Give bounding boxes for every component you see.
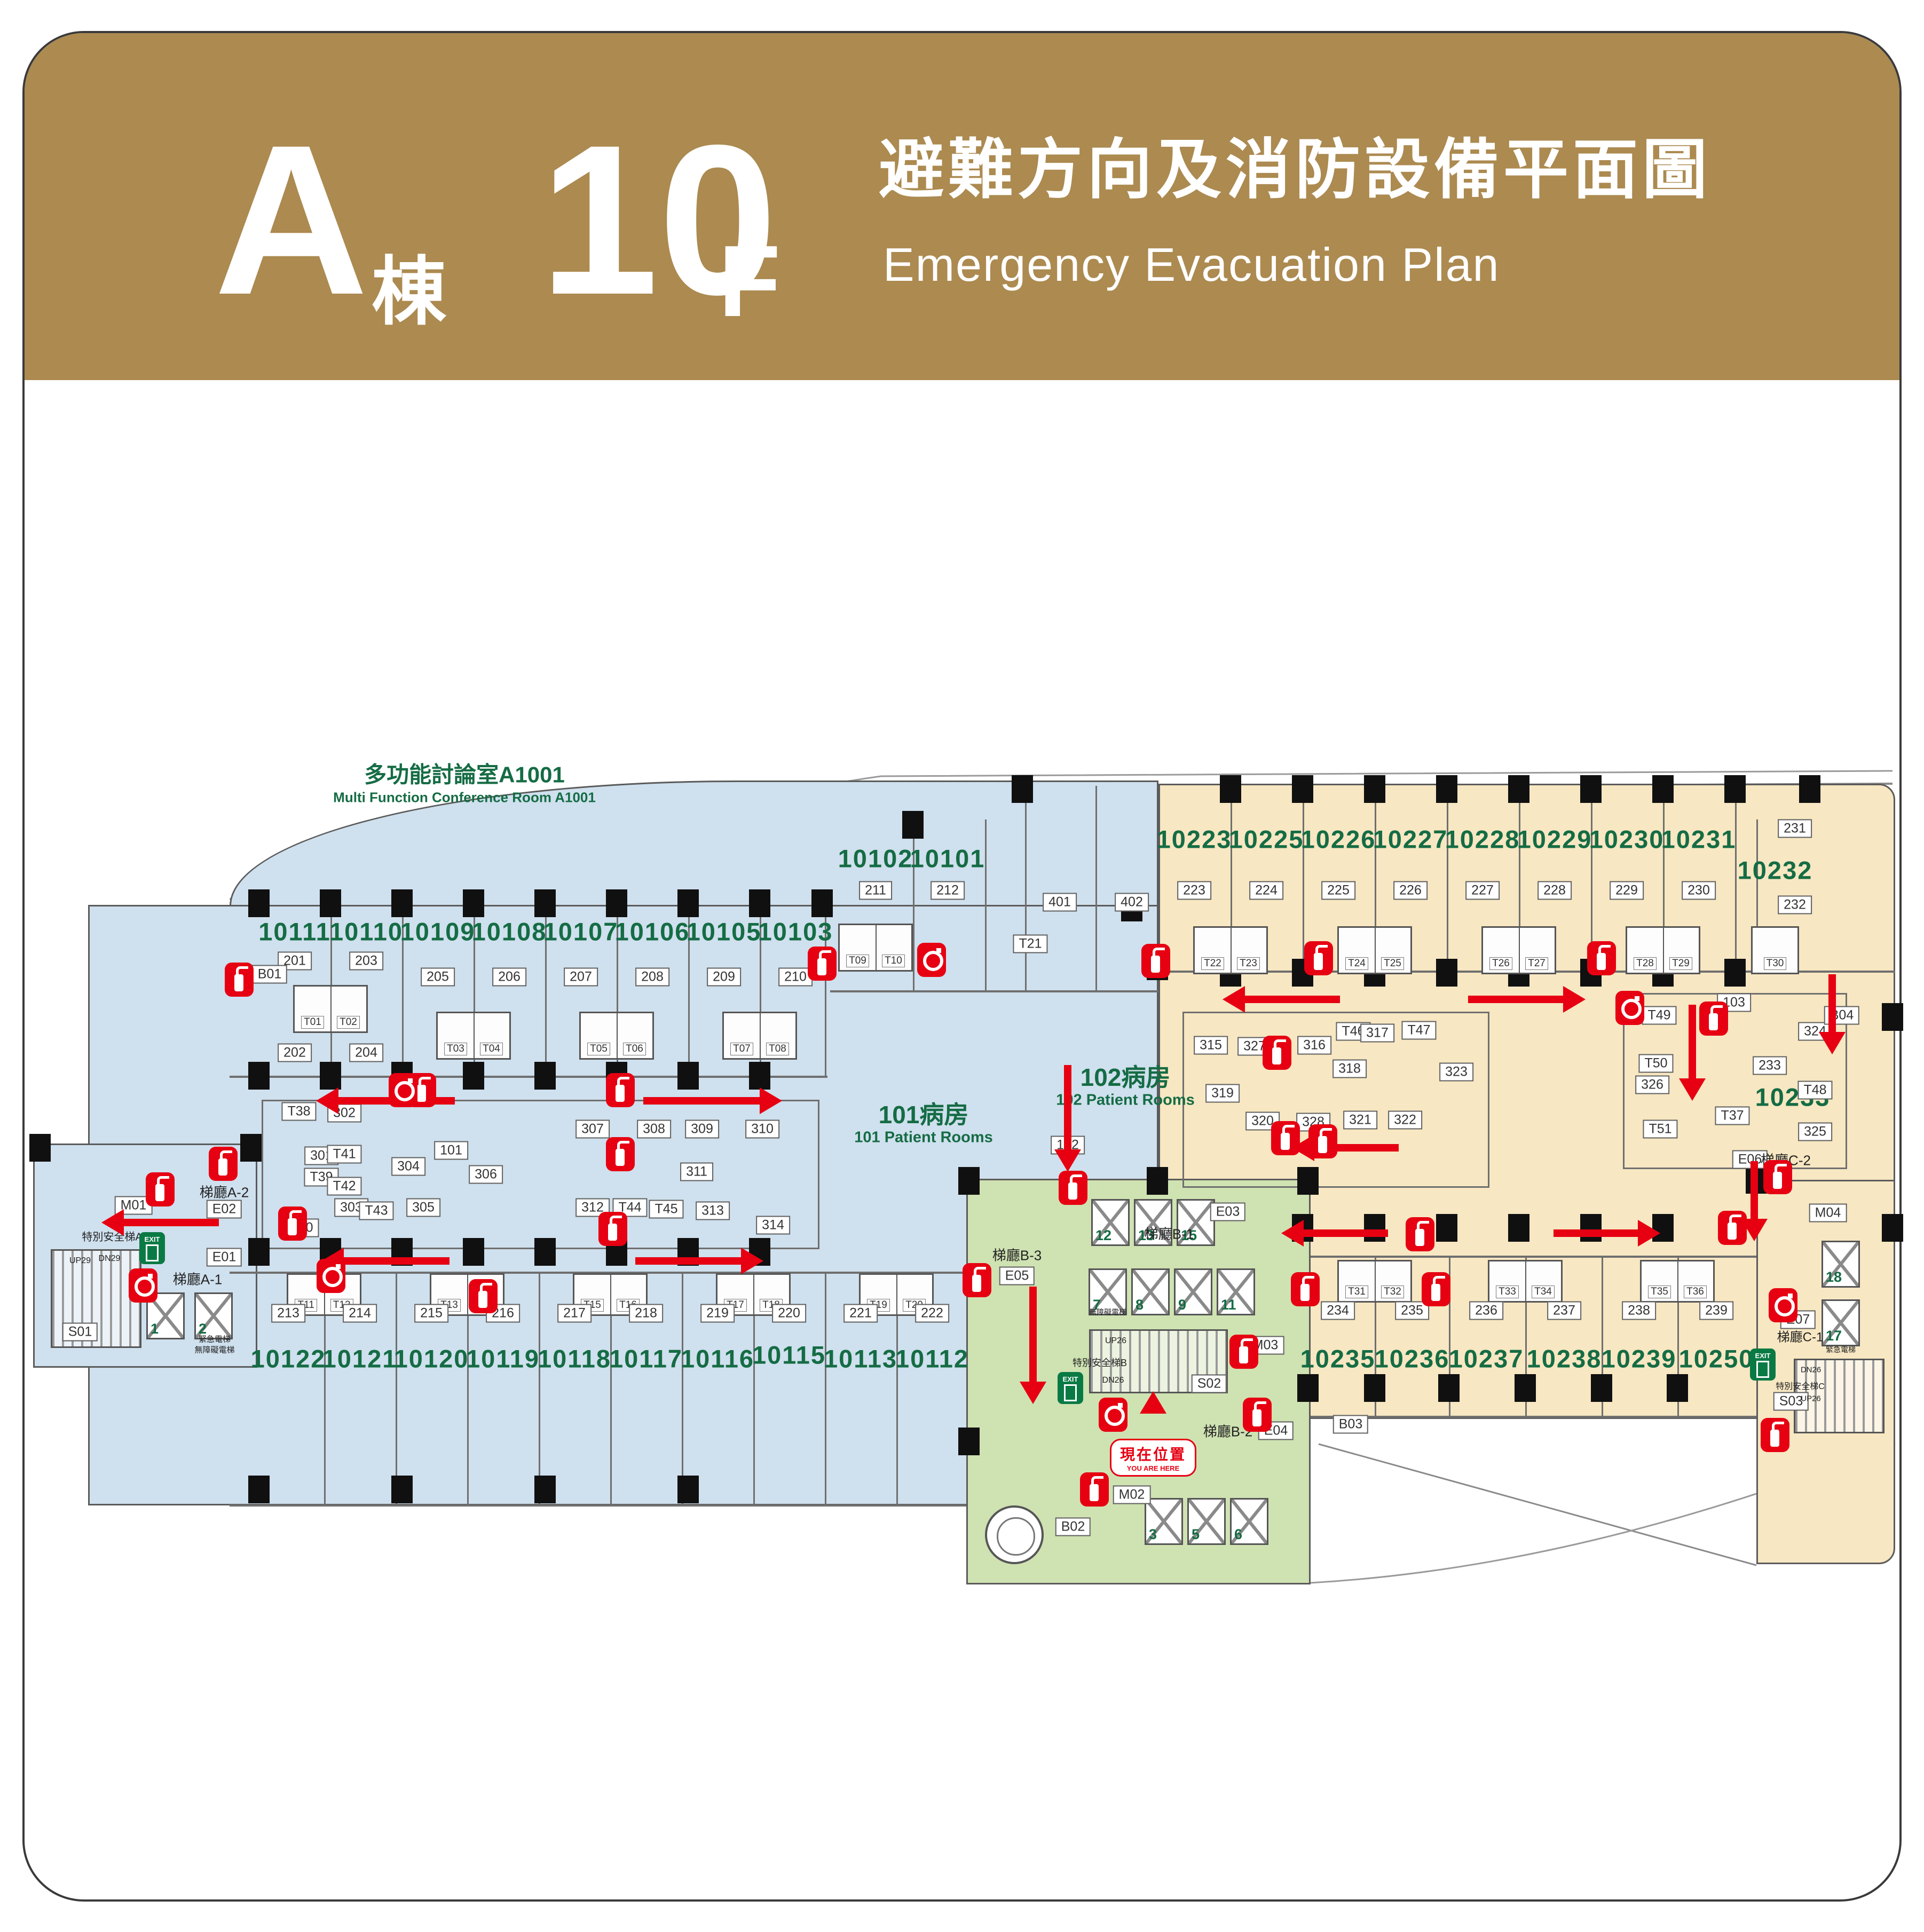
plan-box-label: 325: [1798, 1123, 1832, 1141]
structural-column: [1882, 1214, 1903, 1242]
plan-box-label: 217: [557, 1304, 592, 1323]
elevator-number: 1: [151, 1321, 159, 1337]
fire-hydrant-icon: [917, 943, 946, 977]
fire-hydrant-icon: [129, 1268, 157, 1303]
plan-box-label: T21: [1013, 935, 1047, 953]
evacuation-arrow: [643, 1087, 782, 1115]
structural-column: [1436, 959, 1457, 987]
toilet-label: T26: [1489, 957, 1512, 970]
room-number: 10227: [1373, 825, 1448, 854]
exit-text: EXIT: [1755, 1352, 1771, 1360]
toilet-label: T01: [301, 1016, 324, 1029]
plan-area-text: 梯廳B-1: [1145, 1224, 1194, 1243]
plan-box-label: 318: [1332, 1060, 1367, 1078]
toilet-block: T01T02: [293, 985, 368, 1033]
plan-area-text: 緊急電梯: [199, 1334, 231, 1345]
room-number: 10115: [752, 1340, 826, 1370]
wall-line: [1311, 1256, 1756, 1258]
plan-box-label: 304: [391, 1157, 425, 1176]
exit-door-glyph: [146, 1244, 159, 1261]
fire-hydrant-icon: [1769, 1288, 1797, 1322]
plan-box-label: 237: [1547, 1302, 1581, 1320]
room-number: 10101: [910, 844, 985, 873]
plan-area-text: UP26: [1105, 1336, 1126, 1346]
plan-box-label: S01: [62, 1323, 98, 1342]
plan-area-text: 無障礙電梯: [1089, 1307, 1126, 1318]
plan-box-label: 207: [564, 968, 598, 987]
structural-column: [320, 1062, 341, 1090]
wall-line: [985, 819, 987, 990]
room-number: 10119: [466, 1344, 540, 1374]
plan-box-label: 402: [1115, 893, 1149, 912]
plan-area-text: UP29: [69, 1256, 91, 1266]
plan-box-label: 234: [1321, 1302, 1355, 1320]
plan-box-label: 206: [492, 968, 526, 987]
structural-column: [1591, 1374, 1612, 1402]
plan-box-label: 221: [843, 1304, 878, 1323]
toilet-block: T03T04: [436, 1012, 511, 1060]
toilet-block: T24T25: [1337, 926, 1412, 974]
exit-text: EXIT: [145, 1235, 160, 1243]
elevator-cell: 17: [1822, 1299, 1860, 1346]
fire-extinguisher-icon: [1271, 1121, 1300, 1155]
plan-box-label: 233: [1753, 1056, 1787, 1075]
fire-extinguisher-icon: [1243, 1398, 1272, 1432]
structural-column: [1012, 775, 1033, 803]
plan-box-label: 401: [1043, 893, 1077, 912]
room-number: 10226: [1301, 825, 1376, 854]
elevator-cell: 3: [1145, 1498, 1183, 1545]
plan-box-label: 212: [931, 881, 965, 900]
toilet-block: T35T36: [1640, 1260, 1715, 1303]
plan-box-label: B03: [1333, 1415, 1368, 1434]
you-are-here-marker: [1140, 1391, 1166, 1414]
plan-area-text: 無障礙電梯: [194, 1344, 234, 1355]
plan-box-label: 202: [278, 1044, 312, 1062]
plan-box-label: 317: [1360, 1024, 1394, 1043]
structural-column: [391, 1476, 413, 1503]
you-are-here-zh: 現在位置: [1120, 1443, 1186, 1464]
plan-box-label: 226: [1393, 881, 1428, 900]
structural-column: [463, 889, 484, 917]
structural-column: [677, 1476, 699, 1503]
room-number: 10237: [1449, 1344, 1524, 1374]
room-number: 10238: [1527, 1344, 1602, 1374]
structural-column: [1436, 775, 1457, 803]
plan-box-label: 306: [469, 1165, 503, 1184]
wall-line: [230, 1504, 966, 1507]
structural-column: [248, 1476, 270, 1503]
plan-box-label: 319: [1205, 1084, 1240, 1103]
plan-box-label: T45: [649, 1200, 683, 1219]
elevator-cell: 12: [1091, 1199, 1130, 1246]
exit-door-glyph: [1756, 1361, 1769, 1378]
wall-line: [682, 1272, 683, 1504]
plan-area-text: DN29: [99, 1254, 121, 1264]
plan-box-label: 205: [421, 968, 455, 987]
room-number: 10225: [1229, 825, 1304, 854]
plan-box-label: 223: [1177, 881, 1211, 900]
toilet-label: T06: [623, 1043, 646, 1055]
elevator-number: 12: [1095, 1227, 1111, 1244]
structural-column: [902, 811, 924, 839]
legend: 現在位置 YOU ARE HERE 消防栓箱 Fire Hydrant 滅火器 …: [0, 1788, 1924, 1895]
structural-column: [677, 889, 699, 917]
room-number: 10232: [1738, 856, 1813, 885]
plan-box-label: T51: [1643, 1120, 1677, 1139]
room-number: 10228: [1445, 825, 1520, 854]
plan-area-text: 梯廳A-1: [173, 1269, 222, 1289]
toilet-block: T28T29: [1626, 926, 1700, 974]
plan-box-label: T47: [1401, 1021, 1436, 1040]
plan-box-label: T48: [1797, 1081, 1832, 1100]
plan-box-label: 215: [414, 1304, 448, 1323]
fire-extinguisher-icon: [1263, 1036, 1291, 1070]
toilet-block: T31T32: [1337, 1260, 1412, 1303]
fire-extinguisher-icon: [1761, 1418, 1789, 1452]
room-number: 10223: [1157, 825, 1232, 854]
room-number: 10118: [538, 1344, 611, 1374]
structural-column: [606, 889, 627, 917]
evacuation-arrow: [1019, 1287, 1047, 1404]
structural-column: [463, 1062, 484, 1090]
fire-extinguisher-icon: [209, 1147, 238, 1181]
plan-box-label: M02: [1113, 1486, 1151, 1504]
structural-column: [1667, 1374, 1688, 1402]
plan-box-label: 208: [635, 968, 669, 987]
room-number: 10113: [824, 1344, 897, 1374]
toilet-label: T23: [1237, 957, 1260, 970]
room-number: 10235: [1300, 1344, 1376, 1374]
fire-extinguisher-icon: [1229, 1335, 1258, 1369]
fire-extinguisher-icon: [1291, 1272, 1320, 1306]
plan-box-label: 231: [1778, 819, 1812, 838]
plan-box-label: S02: [1192, 1375, 1227, 1393]
plan-box-label: B02: [1055, 1518, 1091, 1536]
structural-column: [1292, 775, 1313, 803]
elevator-number: 11: [1221, 1297, 1236, 1313]
fire-extinguisher-icon: [225, 963, 254, 997]
elevator-number: 6: [1234, 1526, 1242, 1543]
fire-hydrant-icon: [317, 1259, 345, 1293]
elevator-cell: 9: [1174, 1268, 1212, 1315]
room-number: 10108: [472, 917, 547, 947]
toilet-label: T07: [730, 1043, 753, 1055]
evacuation-arrow: [635, 1247, 763, 1275]
structural-column: [534, 1062, 556, 1090]
fire-extinguisher-icon: [1308, 1124, 1337, 1158]
plan-box-label: 101: [434, 1141, 468, 1160]
toilet-label: T32: [1381, 1286, 1404, 1298]
toilet-label: T34: [1532, 1286, 1555, 1298]
plan-area-text: 梯廳C-1: [1777, 1327, 1824, 1345]
plan-area-text: 梯廳B-3: [992, 1245, 1042, 1265]
plan-box-label: E01: [207, 1248, 242, 1267]
room-number: 10250: [1679, 1344, 1754, 1374]
structural-column: [29, 1134, 51, 1162]
evacuation-plan-sign: A 棟 10 F 避難方向及消防設備平面圖 Emergency Evacuati…: [0, 0, 1924, 1932]
structural-column: [534, 1238, 556, 1266]
structural-column: [240, 1134, 262, 1162]
plan-box-label: 316: [1297, 1036, 1331, 1055]
fire-extinguisher-icon: [146, 1172, 175, 1206]
plan-box-label: 222: [915, 1304, 949, 1323]
plan-box-label: 230: [1682, 881, 1716, 900]
evacuation-arrow: [1468, 985, 1586, 1013]
structural-column: [1297, 1167, 1319, 1195]
fire-extinguisher-icon: [1406, 1217, 1434, 1251]
plan-box-label: 232: [1778, 896, 1812, 914]
exit-door-glyph: [1064, 1384, 1077, 1401]
fire-extinguisher-icon: [1304, 941, 1333, 975]
toilet-label: T02: [337, 1016, 360, 1029]
structural-column: [1508, 775, 1529, 803]
toilet-label: T05: [587, 1043, 610, 1055]
wall-line: [1447, 786, 1448, 971]
structural-column: [391, 889, 413, 917]
toilet-label: T22: [1201, 957, 1224, 970]
room-number: 10122: [251, 1344, 326, 1374]
toilet-label: T27: [1525, 957, 1548, 970]
elevator-number: 9: [1178, 1297, 1186, 1313]
fire-extinguisher-icon: [1141, 944, 1170, 978]
wall-line: [825, 1272, 826, 1504]
plan-area-text: 特別安全梯B: [1073, 1355, 1127, 1369]
structural-column: [1147, 1167, 1168, 1195]
structural-column: [1652, 775, 1674, 803]
structural-column: [320, 889, 341, 917]
structural-column: [534, 889, 556, 917]
plan-box-label: 204: [349, 1044, 383, 1062]
area-label-en: 101 Patient Rooms: [854, 1129, 992, 1147]
plan-box-label: 227: [1465, 881, 1500, 900]
evacuation-arrow: [1292, 1134, 1399, 1162]
plan-box-label: 326: [1635, 1076, 1669, 1094]
plan-box-label: T37: [1715, 1107, 1749, 1125]
evacuation-arrow: [1054, 1065, 1082, 1172]
fire-extinguisher-icon: [1059, 1171, 1087, 1205]
room-number: 10231: [1661, 825, 1737, 854]
structural-column: [248, 1238, 270, 1266]
toilet-label: T33: [1496, 1286, 1519, 1298]
structural-column: [677, 1062, 699, 1090]
room-number: 10230: [1589, 825, 1665, 854]
structural-column: [1882, 1003, 1903, 1031]
elevator-number: 8: [1136, 1297, 1144, 1313]
elevator-cell: 18: [1822, 1241, 1860, 1288]
structural-column: [958, 1167, 980, 1195]
structural-column: [1438, 1374, 1460, 1402]
room-number: 10102: [838, 844, 913, 873]
plan-box-label: 308: [637, 1120, 671, 1139]
elevator-number: 5: [1192, 1526, 1200, 1543]
plan-box-label: 229: [1610, 881, 1644, 900]
plan-box-label: M04: [1809, 1204, 1847, 1223]
fire-extinguisher-icon: [469, 1279, 498, 1313]
elevator-number: 17: [1826, 1328, 1842, 1344]
plan-area-text: UP26: [1801, 1394, 1821, 1403]
you-are-here-en: YOU ARE HERE: [1120, 1464, 1186, 1472]
structural-column: [749, 1062, 770, 1090]
wall-line: [1735, 786, 1737, 971]
structural-column: [1799, 775, 1820, 803]
elevator-cell: 5: [1187, 1498, 1226, 1545]
exit-text: EXIT: [1063, 1375, 1078, 1383]
toilet-label: T25: [1381, 957, 1404, 970]
wall-line: [1303, 786, 1304, 971]
room-number: 10117: [609, 1344, 683, 1374]
plan-box-label: 213: [271, 1304, 305, 1323]
structural-column: [1724, 959, 1746, 987]
plan-area-text: DN26: [1801, 1366, 1821, 1375]
plan-box-label: 236: [1469, 1302, 1503, 1320]
wall-line: [230, 1076, 827, 1078]
toilet-block: T33T34: [1488, 1260, 1563, 1303]
plan-box-label: T43: [359, 1202, 393, 1220]
elevator-number: 3: [1149, 1526, 1157, 1543]
room-number: 10105: [687, 917, 762, 947]
structural-column: [1580, 775, 1602, 803]
plan-box-label: E05: [999, 1267, 1035, 1286]
plan-box-label: T42: [327, 1177, 361, 1196]
plan-box-label: 203: [349, 952, 383, 971]
fire-hydrant-icon: [389, 1073, 417, 1107]
you-are-here-bubble: 現在位置YOU ARE HERE: [1110, 1439, 1196, 1477]
toilet-block: T30: [1751, 926, 1799, 974]
room-number: 10103: [758, 917, 833, 947]
plan-box-label: 224: [1249, 881, 1283, 900]
room-number: 10229: [1517, 825, 1592, 854]
plan-box-label: 321: [1343, 1111, 1377, 1130]
room-number: 10116: [681, 1344, 754, 1374]
toilet-block: T05T06: [579, 1012, 654, 1060]
room-number: 10106: [615, 917, 690, 947]
plan-box-label: 313: [696, 1202, 730, 1220]
plan-box-label: T41: [327, 1145, 361, 1164]
elevator-cell: 6: [1230, 1498, 1268, 1545]
plan-box-label: T49: [1642, 1006, 1676, 1025]
room-number: 10239: [1602, 1344, 1677, 1374]
elevator-cell: 2: [194, 1292, 233, 1339]
structural-column: [1436, 1214, 1457, 1242]
structural-column: [1724, 775, 1746, 803]
toilet-block: T26T27: [1481, 926, 1556, 974]
plan-box-label: 228: [1537, 881, 1572, 900]
structural-column: [248, 1062, 270, 1090]
plan-box-label: 238: [1622, 1302, 1656, 1320]
wall-line: [1025, 790, 1027, 990]
fire-extinguisher-icon: [1587, 941, 1616, 975]
structural-column: [248, 889, 270, 917]
plan-box-label: 211: [859, 881, 892, 900]
fire-extinguisher-icon: [598, 1212, 627, 1246]
evacuation-arrow: [1281, 1219, 1388, 1247]
structural-column: [1220, 775, 1241, 803]
exit-sign-icon: EXIT: [1750, 1349, 1776, 1381]
plan-box-label: 305: [406, 1198, 440, 1217]
toilet-label: T09: [846, 955, 869, 967]
wall-line: [396, 1272, 397, 1504]
structural-column: [811, 889, 833, 917]
elevator-cell: 8: [1131, 1268, 1170, 1315]
plan-box-label: E03: [1210, 1203, 1245, 1221]
plan-box-label: 219: [700, 1304, 735, 1323]
toilet-block: T07T08: [722, 1012, 797, 1060]
toilet-block: T22T23: [1193, 926, 1268, 974]
fire-extinguisher-icon: [808, 947, 837, 981]
plan-box-label: 214: [343, 1304, 377, 1323]
room-number: 10107: [543, 917, 619, 947]
plan-box-label: 314: [756, 1216, 790, 1235]
plan-box-label: 239: [1699, 1302, 1733, 1320]
plan-box-label: 220: [772, 1304, 806, 1323]
fire-extinguisher-icon: [278, 1206, 307, 1241]
plan-box-label: 323: [1439, 1063, 1473, 1082]
area-label-zh: 102病房: [1081, 1058, 1171, 1093]
exit-sign-icon: EXIT: [139, 1232, 165, 1264]
fire-extinguisher-icon: [606, 1137, 635, 1171]
wall-line: [1095, 786, 1097, 990]
plan-box-label: 309: [685, 1120, 719, 1139]
room-number: 10111: [258, 917, 331, 947]
fire-extinguisher-icon: [1763, 1160, 1792, 1194]
evacuation-arrow: [1554, 1219, 1660, 1247]
structural-column: [1297, 1374, 1319, 1402]
floor-plan: T01T02T03T04T05T06T07T08T09T10T11T12T13T…: [0, 0, 1924, 1932]
toilet-label: T08: [766, 1043, 789, 1055]
elevator-number: 18: [1826, 1269, 1842, 1286]
toilet-label: T30: [1764, 957, 1787, 970]
fire-extinguisher-icon: [1718, 1211, 1747, 1245]
structural-column: [1364, 775, 1385, 803]
fire-hydrant-icon: [1099, 1398, 1127, 1432]
conference-room-label-zh: 多功能討論室A1001: [364, 757, 565, 790]
plan-box-label: T38: [281, 1102, 316, 1121]
plan-box-label: 225: [1321, 881, 1355, 900]
toilet-label: T31: [1345, 1286, 1368, 1298]
room-number: 10112: [895, 1344, 969, 1374]
toilet-label: T29: [1669, 957, 1692, 970]
room-number: 10121: [322, 1344, 398, 1374]
plan-box-label: 311: [680, 1163, 713, 1181]
plan-area-text: 緊急電梯: [1826, 1344, 1856, 1355]
plan-area-text: 特別安全梯C: [1776, 1379, 1825, 1392]
toilet-label: T10: [882, 955, 905, 967]
plan-box-label: 307: [575, 1120, 610, 1139]
structural-column: [463, 1238, 484, 1266]
plan-box-label: 322: [1388, 1111, 1422, 1130]
wall-line: [830, 990, 1158, 992]
room-number: 10109: [400, 917, 476, 947]
wall-line: [1311, 1416, 1756, 1418]
plan-box-label: T50: [1638, 1054, 1673, 1073]
exit-sign-icon: EXIT: [1058, 1372, 1083, 1404]
toilet-label: T35: [1648, 1286, 1671, 1298]
structural-column: [1364, 1374, 1385, 1402]
evacuation-arrow: [1818, 974, 1846, 1054]
structural-column: [1508, 1214, 1529, 1242]
structural-column: [1515, 1374, 1536, 1402]
area-label-zh: 101病房: [879, 1095, 969, 1131]
fire-extinguisher-icon: [1080, 1472, 1109, 1507]
toilet-label: T04: [480, 1043, 503, 1055]
plan-area-text: DN26: [1102, 1376, 1124, 1385]
fire-extinguisher-icon: [606, 1073, 635, 1107]
fire-hydrant-icon: [1615, 991, 1644, 1025]
structural-column: [749, 889, 770, 917]
conference-room-label-en: Multi Function Conference Room A1001: [333, 790, 596, 806]
elevator-cell: 11: [1217, 1268, 1255, 1315]
